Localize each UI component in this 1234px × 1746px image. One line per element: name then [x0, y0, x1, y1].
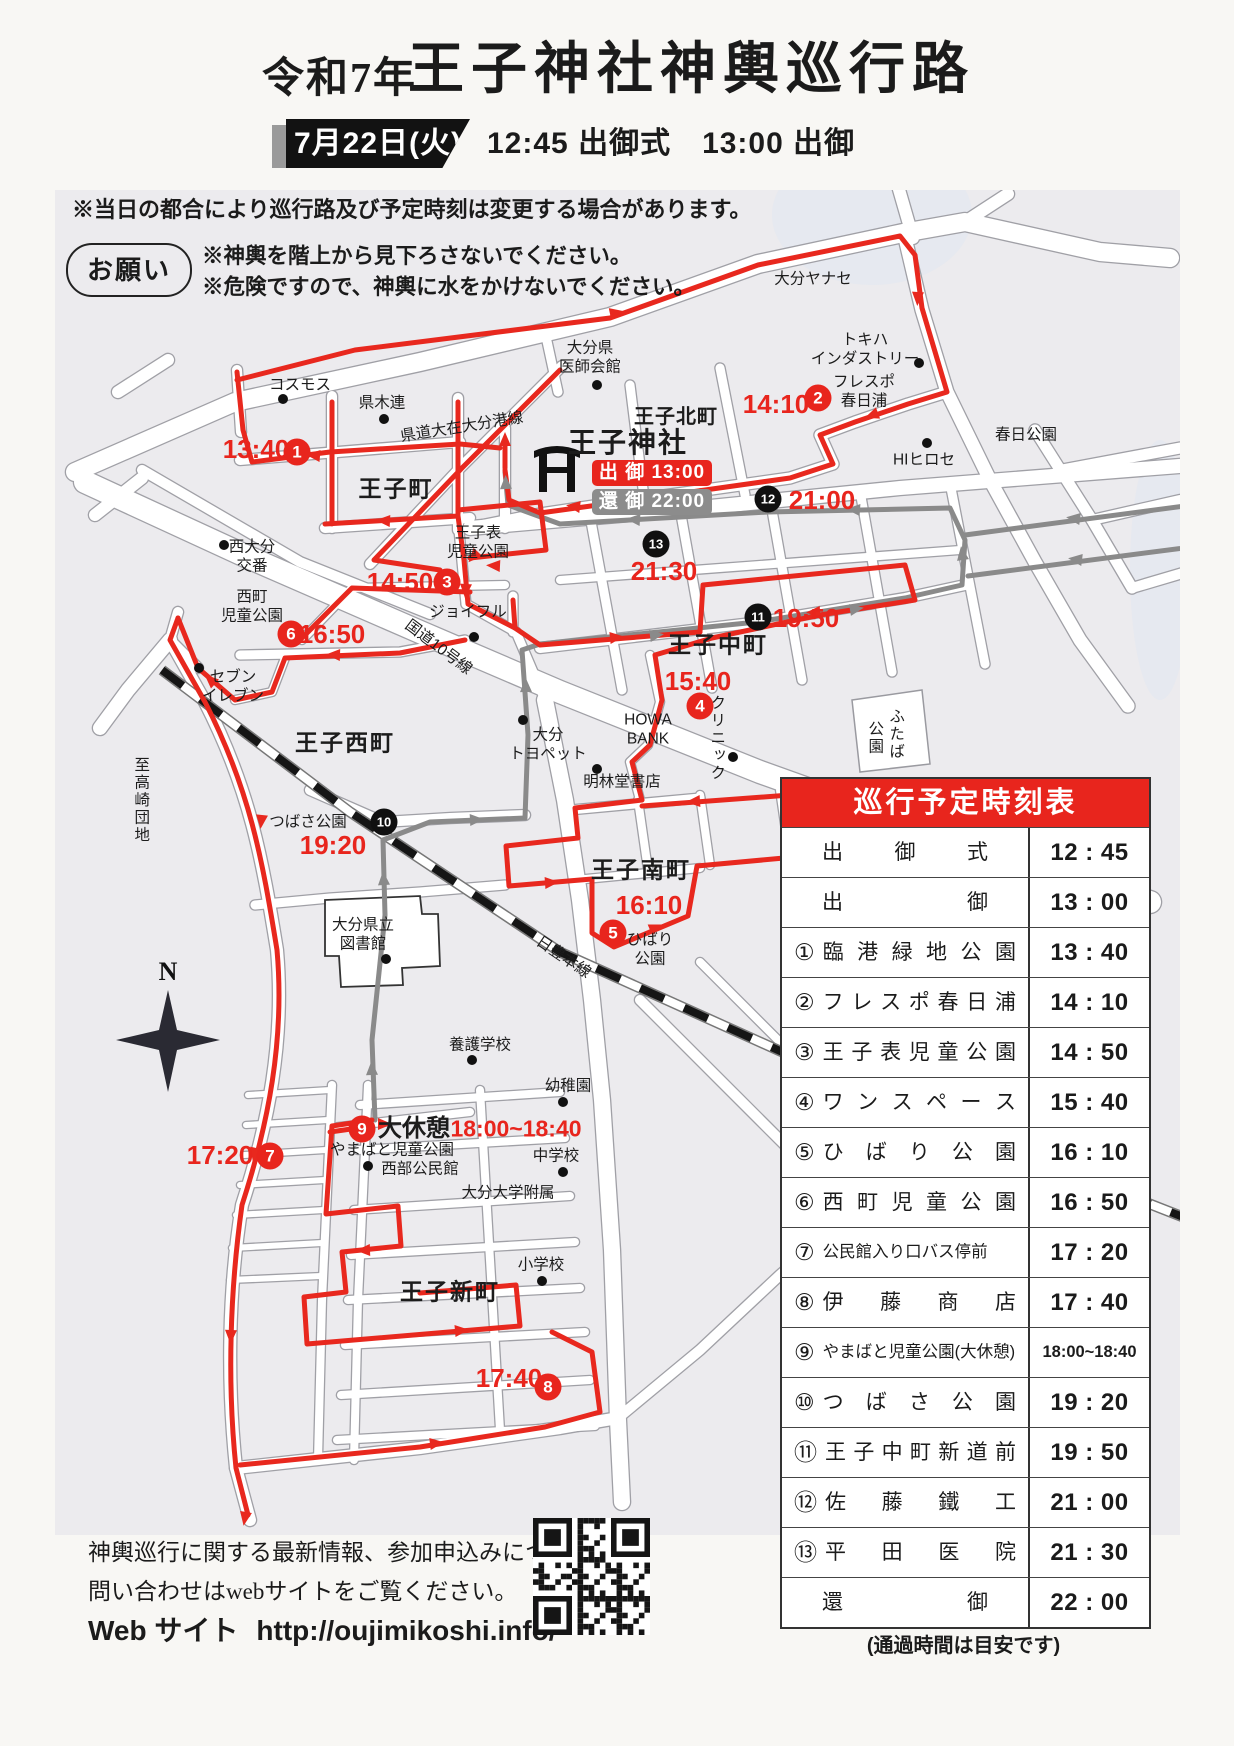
stop-time: 18:00~18:40 — [1028, 1328, 1149, 1377]
map-stop-3: 3 — [434, 569, 461, 596]
stop-time: 21 : 30 — [1028, 1528, 1149, 1577]
map-label: セブン イレブン — [202, 668, 264, 705]
stop-name: 伊藤商店 — [823, 1292, 1016, 1313]
request-line-1: ※神輿を階上から見下ろさないでください。 — [202, 244, 631, 270]
map-label: 王子表 児童公園 — [447, 524, 509, 561]
poi-dot — [728, 752, 738, 762]
map-label: 幼稚園 — [545, 1078, 592, 1097]
poi-dot — [381, 954, 391, 964]
stop-name: 出御式 — [822, 842, 988, 863]
poi-dot — [518, 715, 528, 725]
stop-name: 西町児童公園 — [823, 1192, 1016, 1213]
map-label: 明林堂書店 — [583, 774, 661, 793]
poi-dot — [922, 438, 932, 448]
map-label: 王子西町 — [295, 730, 395, 755]
table-row: ⑫佐藤鐵工21 : 00 — [782, 1477, 1149, 1527]
stop-time: 13 : 40 — [1028, 928, 1149, 977]
web-site-label: Web サイト — [88, 1615, 238, 1646]
map-stop-11: 11 — [745, 604, 772, 631]
stop-time: 17 : 20 — [1028, 1228, 1149, 1277]
map-stop-8: 8 — [535, 1374, 562, 1401]
table-row: ⑤ひばり公園16 : 10 — [782, 1127, 1149, 1177]
map-label: 16:10 — [616, 892, 683, 918]
stop-number: ⑨ — [794, 1341, 815, 1364]
notice-main: ※当日の都合により巡行路及び予定時刻は変更する場合があります。 — [72, 197, 751, 223]
poi-dot — [469, 632, 479, 642]
watermark-streak — [1130, 440, 1190, 700]
stop-name: 公民館入り口バス停前 — [823, 1244, 1016, 1261]
table-row: ⑪王子中町新道前19 : 50 — [782, 1427, 1149, 1477]
map-label: HOWA BANK — [624, 711, 672, 748]
stop-time: 22 : 00 — [1028, 1578, 1149, 1627]
stop-name: ひばり公園 — [823, 1142, 1016, 1163]
shrine-name: 王子神社 — [568, 429, 688, 457]
request-pill: お願い — [66, 243, 192, 297]
map-label: 王子新町 — [400, 1279, 500, 1304]
map-stop-5: 5 — [600, 920, 627, 947]
stop-time: 19 : 20 — [1028, 1378, 1149, 1427]
poi-dot — [558, 1167, 568, 1177]
stop-name: 王子表児童公園 — [823, 1042, 1016, 1063]
timetable: 巡行予定時刻表 出御式12 : 45出御13 : 00①臨港緑地公園13 : 4… — [780, 777, 1151, 1629]
table-row: ⑬平田医院21 : 30 — [782, 1527, 1149, 1577]
map-label: HIヒロセ — [893, 452, 955, 471]
stop-time: 16 : 10 — [1028, 1128, 1149, 1177]
map-label: 19:50 — [773, 605, 840, 631]
map-stop-9: 9 — [349, 1116, 376, 1143]
return-badge: 還 御 22:00 — [592, 489, 712, 515]
map-label: 王子町 — [359, 476, 434, 501]
map-label: 14:50 — [367, 569, 434, 595]
map-label: 春日公園 — [995, 427, 1057, 446]
map-label: 21:30 — [631, 558, 698, 584]
map-label: 18:00~18:40 — [450, 1118, 581, 1141]
map-label: 16:50 — [299, 621, 366, 647]
stop-number: ③ — [794, 1041, 815, 1064]
stop-name: つばさ公園 — [823, 1392, 1016, 1413]
stop-number: ② — [794, 991, 815, 1014]
map-label: 大休憩 — [378, 1117, 450, 1141]
flyer-page: 令和7年 王子神社神輿巡行路 7月22日(火) 12:45 出御式 13:00 … — [0, 0, 1234, 1746]
footer-web: Web サイトhttp://oujimikoshi.info/ — [88, 1614, 557, 1648]
stop-time: 14 : 10 — [1028, 978, 1149, 1027]
map-label: ジョイフル — [429, 604, 507, 623]
stop-number: ⑤ — [794, 1141, 815, 1164]
stop-name: 還御 — [822, 1592, 988, 1613]
stop-number: ⑬ — [794, 1541, 817, 1564]
table-row: ⑨やまばと児童公園(大休憩)18:00~18:40 — [782, 1327, 1149, 1377]
stop-number: ⑥ — [794, 1191, 815, 1214]
map-label: 中学校 — [533, 1148, 580, 1167]
map-label: 15:40 — [665, 668, 732, 694]
stop-name: フレスポ春日浦 — [823, 992, 1016, 1013]
footer-line-2: 問い合わせはwebサイトをご覧ください。 — [88, 1577, 517, 1607]
map-label: 大分大学附属 — [461, 1185, 554, 1204]
stop-name: ワンスペース — [823, 1092, 1016, 1113]
stop-number: ① — [794, 941, 815, 964]
table-row: 還御22 : 00 — [782, 1577, 1149, 1627]
poi-dot — [363, 1161, 373, 1171]
map-label: 王子中町 — [668, 632, 768, 657]
stop-time: 14 : 50 — [1028, 1028, 1149, 1077]
map-label: 小学校 — [518, 1257, 565, 1276]
table-row: ⑩つばさ公園19 : 20 — [782, 1377, 1149, 1427]
map-label: 13:40 — [223, 436, 290, 462]
stop-number: ⑧ — [794, 1291, 815, 1314]
compass-n-label: N — [159, 957, 178, 986]
stop-number: ⑦ — [794, 1241, 815, 1264]
map-label: 至高崎団地 — [131, 756, 150, 844]
stop-name: 平田医院 — [825, 1542, 1016, 1563]
site-url: http://oujimikoshi.info/ — [256, 1615, 556, 1646]
stop-number: ④ — [794, 1091, 815, 1114]
stop-number: ⑩ — [794, 1391, 815, 1414]
table-row: ⑦公民館入り口バス停前17 : 20 — [782, 1227, 1149, 1277]
map-label: 王子南町 — [591, 857, 691, 882]
stop-name: 王子中町新道前 — [825, 1442, 1016, 1463]
stop-name: 出御 — [822, 892, 988, 913]
stop-number: ⑪ — [794, 1441, 817, 1464]
stop-time: 21 : 00 — [1028, 1478, 1149, 1527]
table-row: ⑧伊藤商店17 : 40 — [782, 1277, 1149, 1327]
map-label: 大分県立 図書館 — [332, 916, 394, 953]
map-stop-2: 2 — [805, 385, 832, 412]
map-label: 14:10 — [743, 391, 810, 417]
table-row: ③王子表児童公園14 : 50 — [782, 1027, 1149, 1077]
map-stop-1: 1 — [284, 439, 311, 466]
map-stop-4: 4 — [687, 693, 714, 720]
map-label: 西大分 交番 — [229, 538, 276, 575]
table-row: ⑥西町児童公園16 : 50 — [782, 1177, 1149, 1227]
stop-time: 15 : 40 — [1028, 1078, 1149, 1127]
map-label: 王子北町 — [634, 406, 718, 428]
map-label: 大分 トヨペット — [509, 726, 587, 763]
map-label: コスモス — [269, 377, 331, 396]
map-label: 西部公民館 — [381, 1161, 459, 1180]
map-label: 県木連 — [359, 395, 406, 414]
map-stop-13: 13 — [643, 531, 670, 558]
poi-dot — [914, 358, 924, 368]
poi-dot — [278, 394, 288, 404]
table-row: ①臨港緑地公園13 : 40 — [782, 927, 1149, 977]
poi-dot — [467, 1055, 477, 1065]
map-stop-12: 12 — [755, 486, 782, 513]
stop-time: 13 : 00 — [1028, 878, 1149, 927]
qr-code — [533, 1518, 650, 1635]
poi-dot — [558, 1097, 568, 1107]
map-label: 19:20 — [300, 832, 367, 858]
map-label: 17:20 — [187, 1142, 254, 1168]
stop-name: 臨港緑地公園 — [823, 942, 1016, 963]
map-stop-6: 6 — [278, 621, 305, 648]
map-label: 21:00 — [789, 487, 856, 513]
stop-time: 12 : 45 — [1028, 828, 1149, 877]
map-stop-10: 10 — [371, 809, 398, 836]
table-row: ②フレスポ春日浦14 : 10 — [782, 977, 1149, 1027]
map-label: ふたば — [886, 708, 905, 761]
map-label: 公園 — [865, 721, 884, 756]
stop-time: 19 : 50 — [1028, 1428, 1149, 1477]
poi-dot — [379, 414, 389, 424]
table-row: ④ワンスペース15 : 40 — [782, 1077, 1149, 1127]
stop-name: 佐藤鐵工 — [825, 1492, 1016, 1513]
map-label: 大分県 医師会館 — [559, 339, 621, 376]
map-label: 西町 児童公園 — [221, 588, 283, 625]
map-label: ひばり 公園 — [627, 931, 674, 968]
stop-time: 17 : 40 — [1028, 1278, 1149, 1327]
map-label: トキハ インダストリー — [811, 331, 920, 368]
map-label: フレスポ 春日浦 — [833, 373, 895, 410]
poi-dot — [194, 663, 204, 673]
timetable-rows: 出御式12 : 45出御13 : 00①臨港緑地公園13 : 40②フレスポ春日… — [782, 827, 1149, 1627]
map-label: 17:40 — [476, 1365, 543, 1391]
map-label: 大分ヤナセ — [774, 271, 852, 290]
map-label: やまばと児童公園 — [330, 1142, 454, 1161]
poi-dot — [592, 764, 602, 774]
stop-time: 16 : 50 — [1028, 1178, 1149, 1227]
timetable-footnote: (通過時間は目安です) — [780, 1636, 1147, 1656]
stop-name: やまばと児童公園(大休憩) — [823, 1344, 1016, 1361]
depart-badge: 出 御 13:00 — [592, 460, 712, 486]
stop-number: ⑫ — [794, 1491, 817, 1514]
timetable-title: 巡行予定時刻表 — [782, 779, 1149, 827]
poi-dot — [219, 540, 229, 550]
map-label: 養護学校 — [449, 1037, 511, 1056]
table-row: 出御13 : 00 — [782, 877, 1149, 927]
poi-dot — [592, 380, 602, 390]
map-stop-7: 7 — [257, 1143, 284, 1170]
poi-dot — [537, 1276, 547, 1286]
request-line-2: ※危険ですので、神輿に水をかけないでください。 — [202, 275, 695, 301]
table-row: 出御式12 : 45 — [782, 827, 1149, 877]
